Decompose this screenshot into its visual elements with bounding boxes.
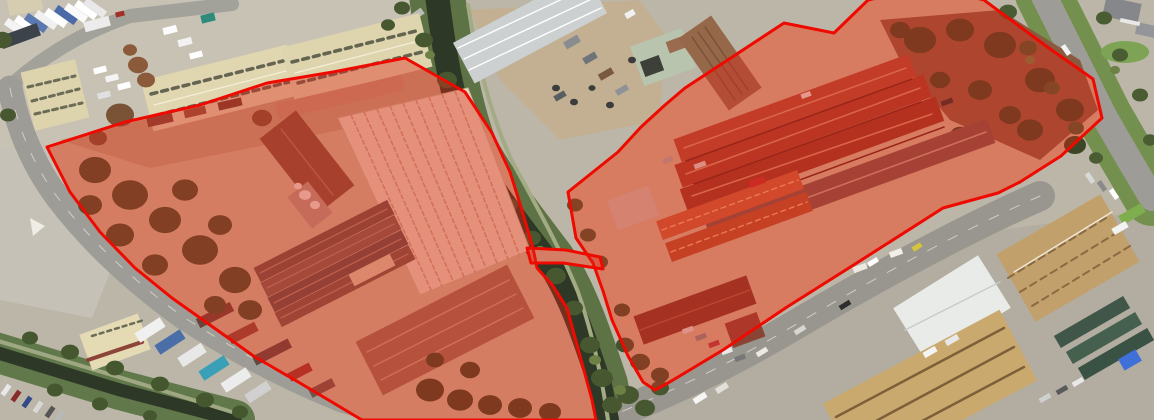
canal-trees-sw-blob	[92, 397, 108, 410]
canal-trees-sw-blob	[232, 405, 248, 418]
satellite-map-view[interactable]	[0, 0, 1154, 420]
verge-trees-east-blob	[1089, 152, 1103, 163]
canal-trees-blob	[0, 108, 16, 121]
verge-trees-east-blob	[1096, 11, 1112, 24]
scrapyard-debris-blob	[628, 57, 636, 64]
tree-highlights-blob	[1110, 66, 1120, 74]
tree-highlights-blob	[589, 355, 601, 365]
tree-highlights-blob	[425, 51, 435, 59]
verge-trees-east-blob	[1132, 88, 1148, 101]
canal-trees-blob	[591, 369, 613, 387]
canal-trees-sw-blob	[61, 345, 79, 360]
verge-trees-east-blob	[1112, 48, 1128, 61]
aerial-imagery[interactable]	[0, 0, 1154, 420]
canal-trees-sw-blob	[47, 383, 63, 396]
canal-trees-blob	[580, 337, 600, 353]
scrap-heaps-nw-blob	[123, 44, 137, 55]
canal-trees-sw-blob	[151, 377, 169, 392]
scrapyard-debris-blob	[552, 85, 560, 92]
canal-trees-blob	[415, 33, 433, 48]
scrapyard-debris-blob	[570, 99, 578, 106]
tree-highlights-blob	[614, 385, 626, 395]
canal-trees-blob	[381, 19, 395, 30]
canal-trees-sw-blob	[196, 393, 214, 408]
canal-trees-sw-blob	[22, 331, 38, 344]
scrap-heaps-nw-blob	[128, 57, 148, 73]
scrapyard-debris-blob	[606, 102, 614, 109]
scrapyard-debris-blob	[589, 85, 596, 91]
canal-trees-blob	[394, 1, 410, 14]
canal-trees-sw-blob	[106, 361, 124, 376]
scrap-heaps-nw-blob	[137, 73, 155, 88]
canal-trees-blob	[635, 400, 655, 416]
